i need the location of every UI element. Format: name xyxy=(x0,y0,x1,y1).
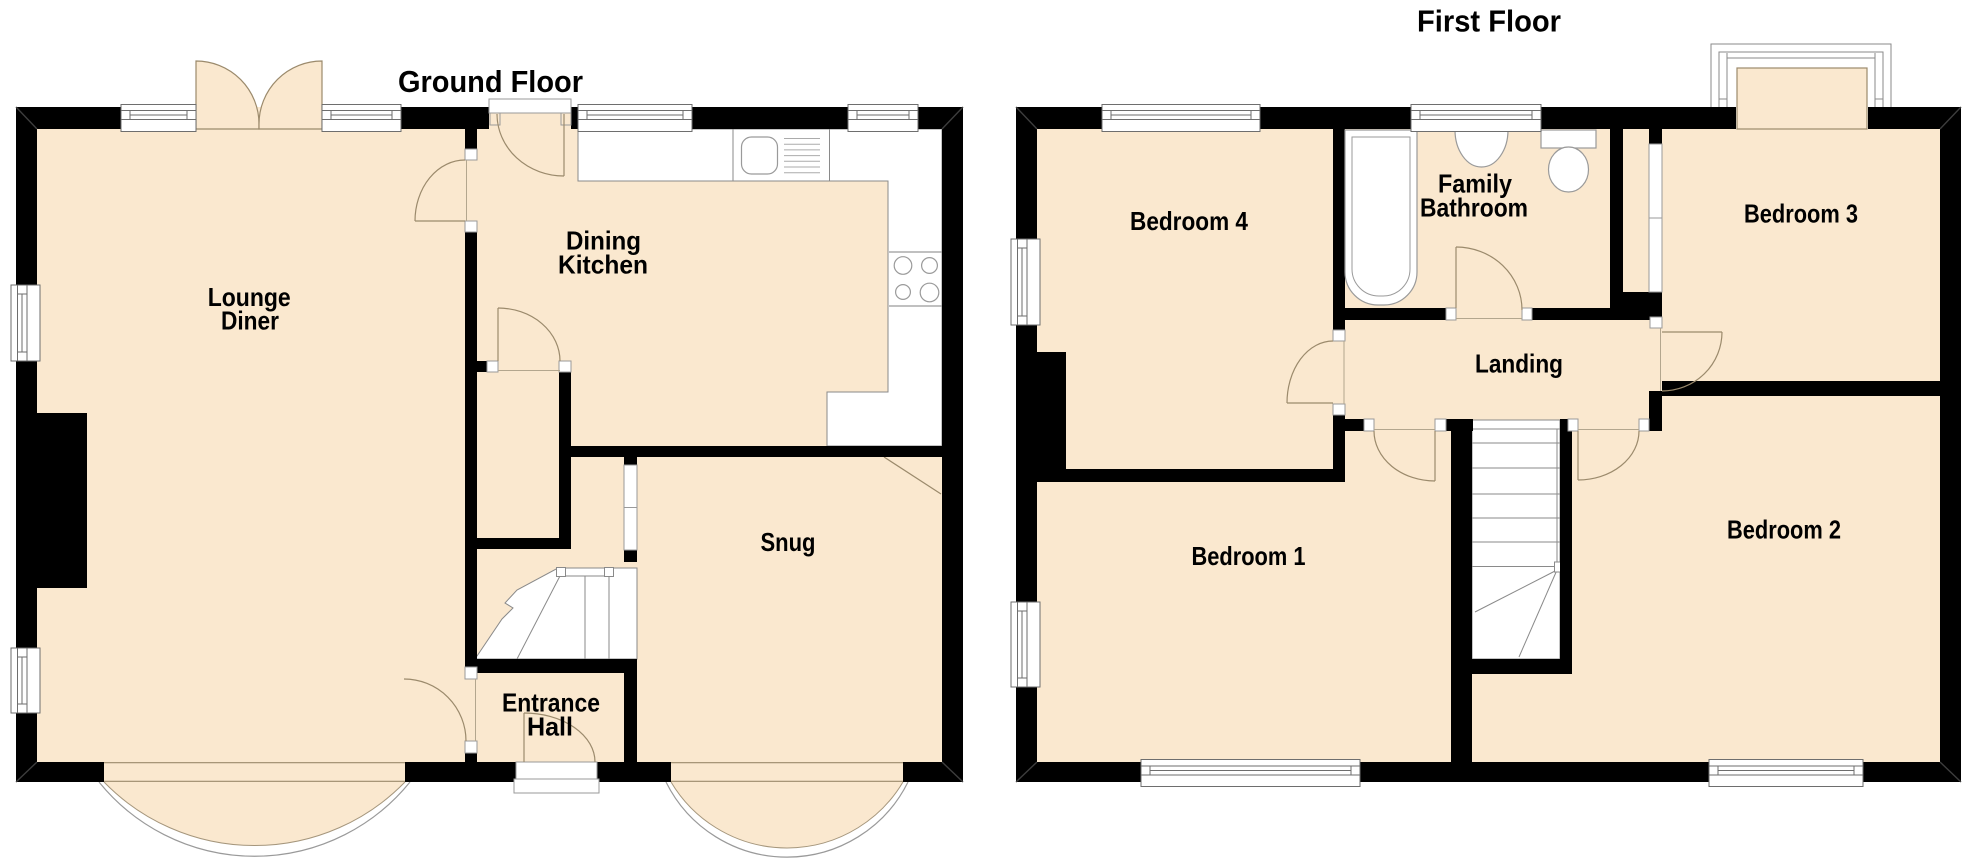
svg-text:Bathroom: Bathroom xyxy=(1420,193,1528,223)
svg-text:Diner: Diner xyxy=(221,306,279,336)
svg-text:Bedroom 4: Bedroom 4 xyxy=(1130,206,1248,236)
svg-text:Bedroom 2: Bedroom 2 xyxy=(1727,515,1841,545)
svg-text:Hall: Hall xyxy=(527,712,573,742)
svg-text:Snug: Snug xyxy=(761,527,816,557)
svg-text:Bedroom 3: Bedroom 3 xyxy=(1744,199,1858,229)
svg-text:Ground Floor: Ground Floor xyxy=(398,65,583,99)
svg-text:Landing: Landing xyxy=(1475,349,1563,379)
svg-text:First Floor: First Floor xyxy=(1417,5,1561,39)
svg-text:Bedroom 1: Bedroom 1 xyxy=(1192,541,1306,571)
svg-text:Kitchen: Kitchen xyxy=(558,250,648,280)
